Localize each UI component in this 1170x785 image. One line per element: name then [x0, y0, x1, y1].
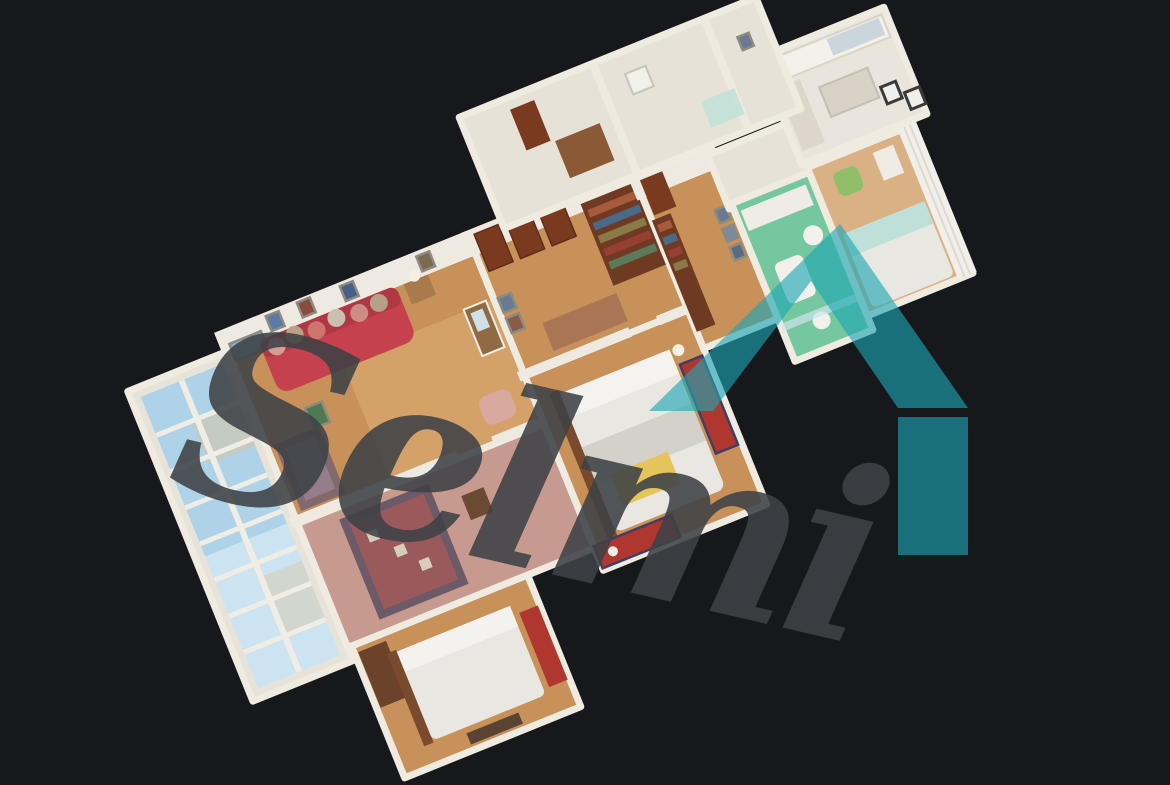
3d-tour-stage: Selmi — [0, 0, 1170, 785]
logo-leg — [898, 417, 968, 555]
dollhouse-3d-view[interactable]: Selmi — [0, 0, 1170, 785]
